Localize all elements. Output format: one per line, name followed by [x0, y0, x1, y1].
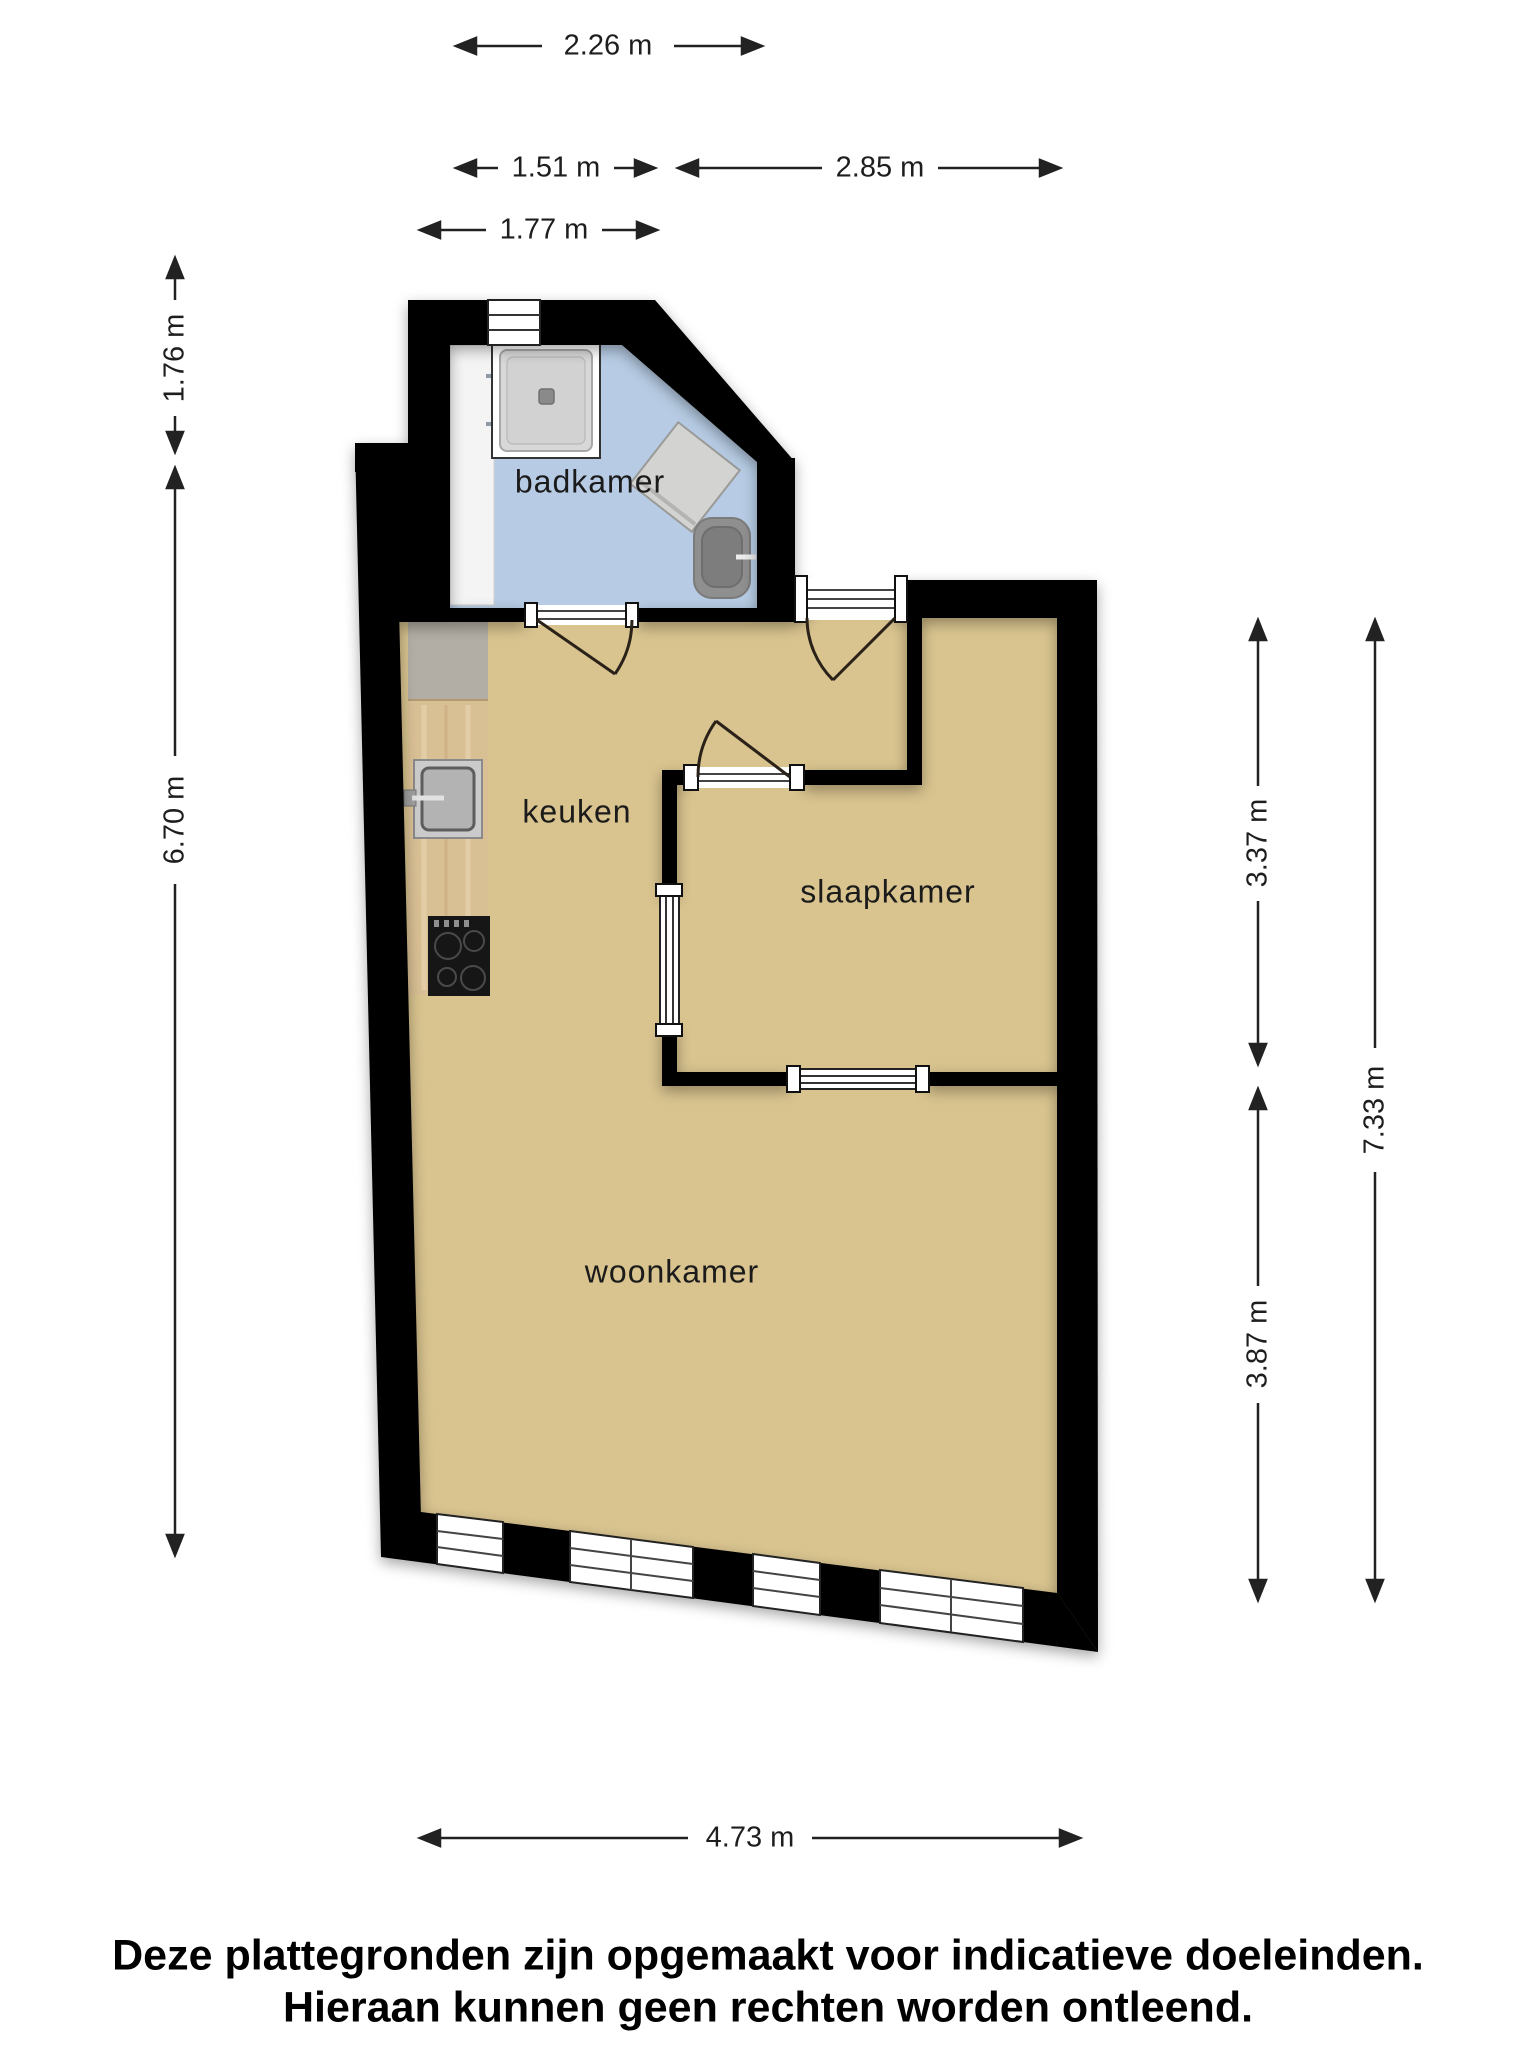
arrowhead: [167, 1535, 183, 1555]
glass-wall-jamb-top: [656, 884, 682, 896]
disclaimer-line-1: Deze plattegronden zijn opgemaakt voor i…: [112, 1932, 1424, 1981]
arrowhead: [637, 222, 657, 238]
arrowhead: [420, 222, 440, 238]
dim-right-733: 7.33 m: [1359, 1066, 1392, 1155]
arrowhead: [1250, 1044, 1266, 1064]
arrowhead: [1250, 1580, 1266, 1600]
bathroom-door-jamb-left: [525, 603, 537, 627]
arrowhead: [167, 258, 183, 278]
shower-drain: [539, 389, 554, 404]
cooktop-knob-1: [434, 920, 439, 927]
arrowhead: [456, 160, 476, 176]
bathroom-doorway-gap: [537, 605, 626, 625]
bathroom-window-glass: [488, 300, 540, 345]
bedroom-bottom-window-jamb-left: [787, 1066, 800, 1092]
bedroom-interior-window-bottom: [787, 1066, 929, 1092]
entrance-jamb-left: [795, 576, 807, 622]
arrowhead: [456, 38, 476, 54]
cooktop-knob-3: [454, 920, 459, 927]
bedroom-door-wall-left: [662, 770, 684, 785]
arrowhead: [1250, 1089, 1266, 1109]
bathroom-window: [488, 300, 540, 345]
arrowhead: [1367, 620, 1383, 640]
bedroom-bottom-window: [800, 1069, 917, 1089]
bedroom-door-wall-right: [804, 770, 922, 785]
bathroom-right-wall: [757, 458, 795, 622]
shower: [492, 343, 600, 458]
arrowhead: [678, 160, 698, 176]
bedroom-interior-window-left: [656, 884, 682, 1036]
living-floor: [395, 445, 1097, 1630]
dim-top-226: 2.26 m: [564, 30, 653, 63]
glass-wall-window: [660, 895, 679, 1025]
arrowhead: [167, 468, 183, 488]
arrowhead: [635, 160, 655, 176]
dim-right-337: 3.37 m: [1242, 799, 1275, 888]
bedroom-bottom-wall-left: [662, 1072, 790, 1086]
disclaimer-line-2: Hieraan kunnen geen rechten worden ontle…: [283, 1984, 1253, 2033]
bedroom-door-jamb-left: [684, 765, 698, 790]
bedroom-doorway: [684, 765, 804, 790]
cooktop-knob-4: [464, 920, 469, 927]
glass-wall-jamb-bottom: [656, 1024, 682, 1036]
left-wall-upper-fill: [395, 443, 450, 622]
entrance-jamb-right: [895, 576, 907, 622]
toilet: [694, 518, 756, 598]
bottom-window-3: [753, 1554, 820, 1615]
entrance-doorway: [795, 576, 907, 622]
bathroom-bottom-wall-right: [638, 608, 793, 622]
arrowhead: [1250, 620, 1266, 640]
dim-right-387: 3.87 m: [1242, 1300, 1275, 1389]
floorplan-page: badkamer keuken slaapkamer woonkamer 2.2…: [0, 0, 1536, 2048]
cooktop: [428, 916, 490, 996]
dim-top-177: 1.77 m: [500, 214, 589, 247]
dim-top-151: 1.51 m: [512, 152, 601, 185]
cooktop-body: [428, 916, 490, 996]
bedroom-door-jamb-right: [790, 765, 804, 790]
dim-bottom-473: 4.73 m: [706, 1822, 795, 1855]
dim-left-670: 6.70 m: [159, 776, 192, 865]
bedroom-bottom-window-jamb-right: [916, 1066, 929, 1092]
room-label-bathroom: badkamer: [515, 464, 665, 501]
room-label-kitchen: keuken: [522, 794, 631, 831]
arrowhead: [742, 38, 762, 54]
bottom-window-1: [437, 1514, 503, 1573]
dim-top-285: 2.85 m: [836, 152, 925, 185]
bath-counter: [450, 345, 494, 605]
right-wall: [1057, 580, 1098, 1652]
bedroom-doorway-gap: [698, 767, 790, 788]
cooktop-knob-2: [444, 920, 449, 927]
arrowhead: [1040, 160, 1060, 176]
arrowhead: [1060, 1830, 1080, 1846]
kitchen-counter-gray: [408, 618, 488, 700]
kitchen-sink: [404, 760, 482, 838]
arrowhead: [420, 1830, 440, 1846]
bedroom-left-upper-wall: [907, 618, 922, 770]
room-label-bedroom: slaapkamer: [800, 874, 975, 911]
bedroom-bottom-wall-right: [927, 1072, 1072, 1086]
room-label-living: woonkamer: [585, 1254, 759, 1291]
arrowhead: [1367, 1580, 1383, 1600]
floorplan-drawing: [0, 0, 1536, 2048]
dim-left-176: 1.76 m: [159, 314, 192, 403]
bedroom-glass-wall-upper: [662, 785, 677, 895]
arrowhead: [167, 432, 183, 452]
